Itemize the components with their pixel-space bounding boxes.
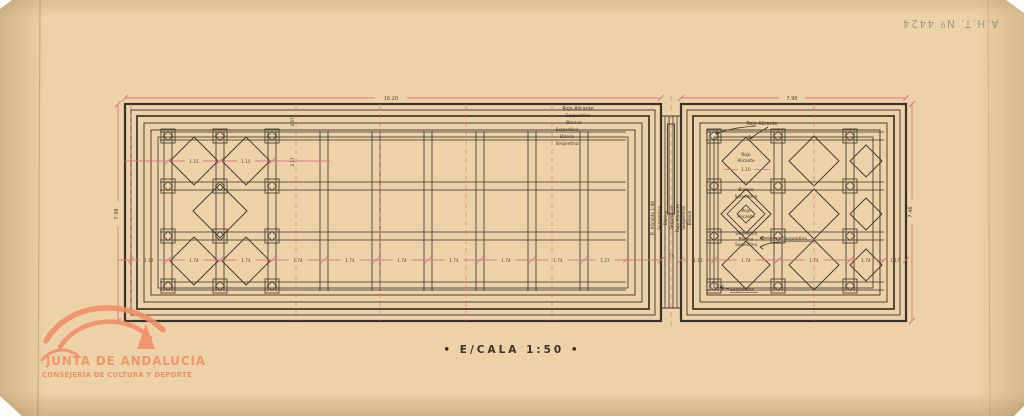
dim-row-right-2: 1.74 — [741, 258, 751, 264]
strip-label-6: Serpentina — [681, 206, 687, 230]
dim-row-left-8: 1.74 — [501, 258, 511, 264]
right-below1-label: Serpentina — [735, 231, 757, 236]
dim-top-left-total: 16.20 — [384, 96, 398, 102]
dim-top-right-total: 7.96 — [786, 96, 797, 102]
dim-right-height: 7.46 — [908, 206, 914, 217]
dim-row-right-1: 1.13 — [693, 258, 703, 264]
left-band-label-1: Rojo Alicante — [562, 106, 593, 112]
paper-shade-right — [978, 0, 1024, 416]
strip-label-4: Serpentina — [669, 206, 675, 230]
strip-label-2: Serpentina — [657, 206, 663, 230]
left-band-label-4: Serpentina — [556, 127, 579, 132]
right-center-line1: Rojo — [741, 208, 751, 214]
left-band-label-5: Blanco — [560, 134, 575, 139]
dim-row-left-3: 1.74 — [241, 258, 251, 264]
strip-label-5: Rojo Alicante — [675, 204, 681, 232]
strip-label-1: R. Alicante 1.98 — [650, 201, 656, 235]
dim-gap: .75 — [668, 254, 675, 259]
dim-row-right-4: 1.74 — [861, 258, 871, 264]
left-band-label-6: Serpentina — [556, 141, 579, 146]
dim-row-left-5: 1.74 — [345, 258, 355, 264]
dim-row-right-3: 1.74 — [809, 258, 819, 264]
left-band-label-2: Serpentina — [565, 113, 590, 119]
scanned-drawing-sheet: Rojo Alicante Serpentina Blanco Serpenti… — [0, 0, 1024, 416]
dim-row-left-4: 1.74 — [293, 258, 303, 264]
right-d1-dim: 1.10 — [741, 167, 751, 172]
paper-shade-top — [0, 0, 1024, 16]
left-band-label-3: Blanco — [566, 120, 582, 126]
left-diamond-dim-2: 1.15 — [241, 159, 251, 164]
dim-row-right-5: 1.17 — [890, 258, 900, 264]
paper-shade-bottom — [0, 392, 1024, 416]
dim-row-left-2: 1.74 — [189, 258, 199, 264]
right-bottom-arrow-label: Serpentina — [730, 287, 754, 293]
dim-left-height: 7.98 — [114, 208, 120, 219]
dim-row-left-6: 1.74 — [397, 258, 407, 264]
dim-row-left-10: 1.27 — [600, 258, 610, 264]
logo-title: JUNTA DE ANDALUCIA — [45, 354, 206, 368]
right-center-line2: Alicante — [737, 214, 755, 220]
left-vert-dim-2: 2.17 — [290, 157, 295, 167]
scale-caption: • E/CALA 1:50 • — [443, 344, 580, 356]
right-d1-line2: Alicante — [737, 158, 755, 164]
right-top-label: Rojo Alicante — [746, 121, 777, 127]
left-diamond-dim-1: 1.15 — [189, 159, 199, 164]
right-arrow-label: Serpentina — [783, 236, 807, 242]
right-d1-line1: Rojo — [741, 152, 751, 158]
right-below3-label: Serpentina — [735, 242, 757, 247]
right-band2-label: Serpentina — [735, 194, 758, 199]
plan-drawing: Rojo Alicante Serpentina Blanco Serpenti… — [0, 0, 1024, 416]
pencil-inscription: A.H.T. Nº 4424 — [901, 17, 998, 29]
dim-row-left-9: 1.74 — [553, 258, 563, 264]
left-vert-dim-1: 4.57 — [290, 117, 295, 127]
dim-row-left-1: 1.57 — [144, 258, 154, 264]
right-band1-label: Blanco — [738, 187, 754, 193]
strip-label-3: Blanco — [663, 210, 669, 225]
logo-subtitle: CONSEJERÍA DE CULTURA Y DEPORTE — [42, 370, 192, 379]
dim-row-left-7: 1.74 — [449, 258, 459, 264]
strip-label-7: Blanco — [687, 210, 693, 225]
